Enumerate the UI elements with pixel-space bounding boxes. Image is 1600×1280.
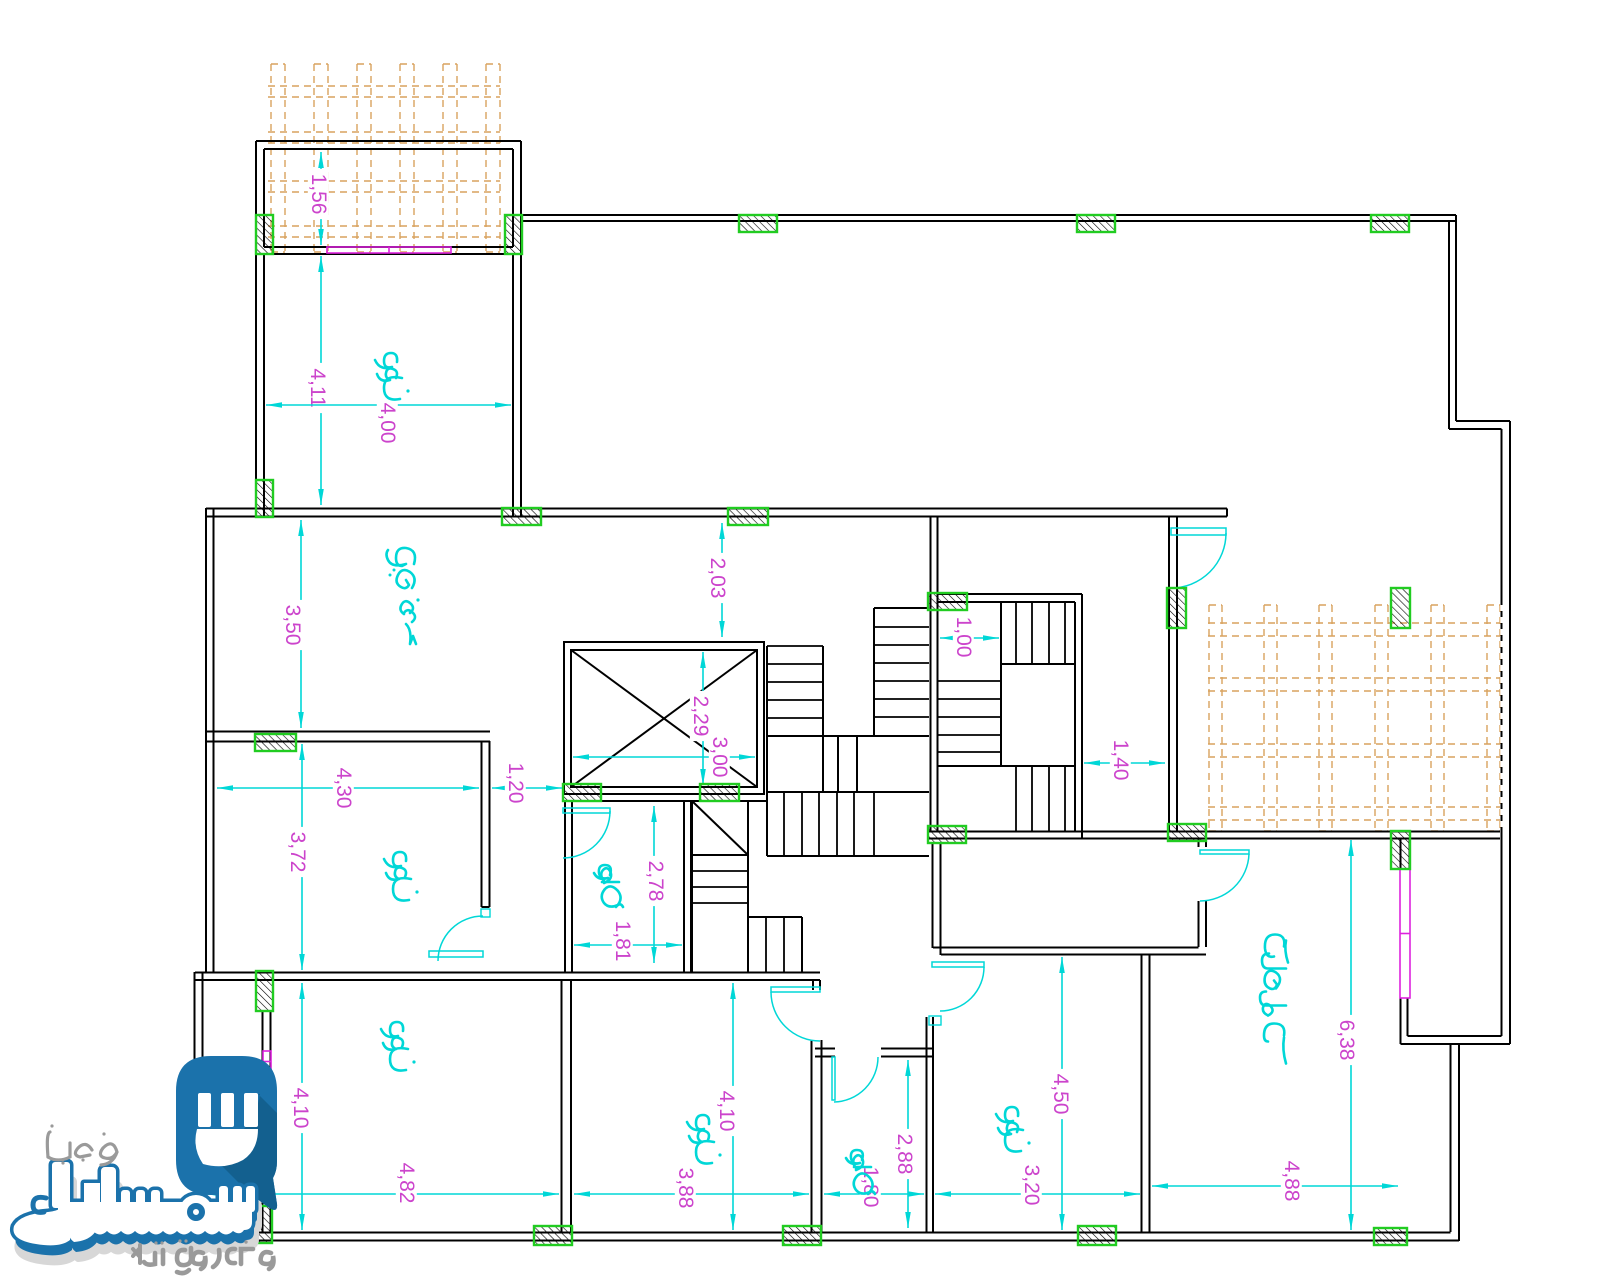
svg-text:3,72: 3,72 — [286, 832, 309, 873]
svg-text:1,00: 1,00 — [952, 617, 975, 658]
svg-text:4,88: 4,88 — [1280, 1161, 1303, 1202]
svg-text:3,00: 3,00 — [708, 737, 731, 778]
svg-text:2,78: 2,78 — [644, 861, 667, 902]
svg-text:4,00: 4,00 — [376, 403, 399, 444]
svg-text:4,10: 4,10 — [715, 1091, 738, 1132]
svg-text:4,50: 4,50 — [1049, 1074, 1072, 1115]
svg-text:1,56: 1,56 — [307, 174, 330, 215]
svg-text:4,11: 4,11 — [306, 368, 329, 407]
svg-text:1,81: 1,81 — [611, 921, 634, 962]
svg-text:2,88: 2,88 — [893, 1134, 916, 1175]
svg-text:4,82: 4,82 — [395, 1163, 418, 1204]
svg-text:3,50: 3,50 — [281, 605, 304, 646]
svg-text:2,29: 2,29 — [689, 696, 712, 737]
svg-text:3,88: 3,88 — [674, 1168, 697, 1209]
svg-text:3,20: 3,20 — [1020, 1165, 1043, 1206]
svg-text:4,30: 4,30 — [332, 768, 355, 809]
svg-text:1,40: 1,40 — [1109, 740, 1132, 781]
svg-text:6,38: 6,38 — [1335, 1020, 1358, 1061]
svg-text:1,20: 1,20 — [504, 763, 527, 804]
svg-text:2,03: 2,03 — [706, 558, 729, 599]
svg-text:4,10: 4,10 — [289, 1088, 312, 1129]
